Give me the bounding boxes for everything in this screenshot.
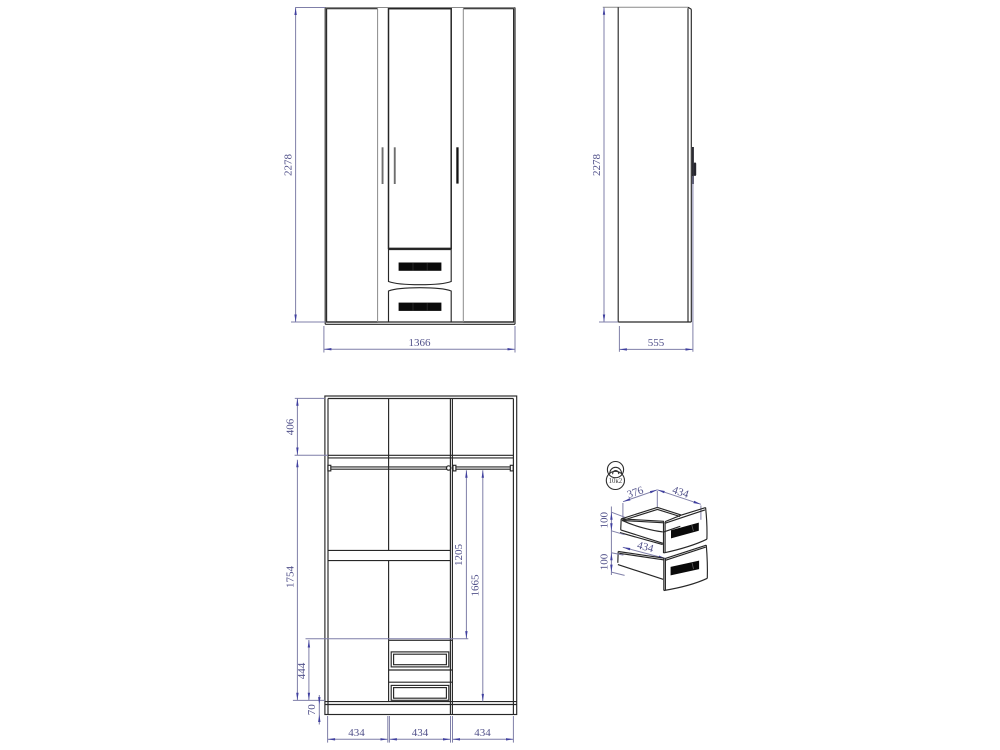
- svg-text:2278: 2278: [591, 154, 603, 177]
- svg-text:444: 444: [296, 662, 308, 679]
- svg-text:434: 434: [412, 727, 429, 739]
- svg-text:1366: 1366: [409, 337, 432, 349]
- svg-text:406: 406: [284, 418, 296, 435]
- svg-text:100: 100: [598, 553, 610, 570]
- svg-text:1205: 1205: [453, 544, 465, 567]
- svg-text:100: 100: [598, 512, 610, 529]
- svg-text:434: 434: [474, 727, 491, 739]
- svg-text:555: 555: [648, 337, 665, 349]
- svg-text:10к2: 10к2: [609, 478, 623, 485]
- svg-text:1754: 1754: [284, 566, 296, 589]
- svg-text:2278: 2278: [283, 154, 295, 177]
- svg-text:1665: 1665: [470, 574, 482, 597]
- svg-text:434: 434: [348, 727, 365, 739]
- svg-text:70: 70: [306, 704, 318, 716]
